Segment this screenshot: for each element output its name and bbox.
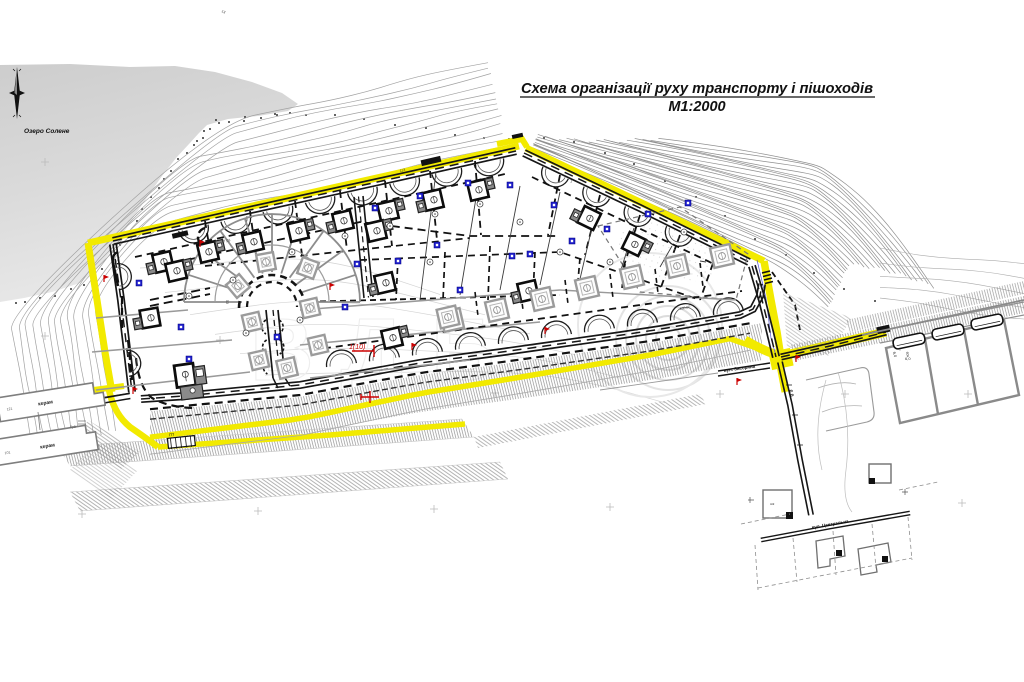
svg-text:Озеро Солене: Озеро Солене xyxy=(24,128,70,135)
svg-text:Схема організації руху транспо: Схема організації руху транспорту і пішо… xyxy=(521,81,873,97)
svg-text:ГП: ГП xyxy=(169,432,175,438)
svg-text:шк: шк xyxy=(770,502,775,506)
svg-text:8у8: 8у8 xyxy=(70,425,76,429)
svg-text:1(10): 1(10) xyxy=(349,344,365,351)
svg-text:53: 53 xyxy=(225,300,229,304)
svg-text:М1:2000: М1:2000 xyxy=(668,99,725,115)
